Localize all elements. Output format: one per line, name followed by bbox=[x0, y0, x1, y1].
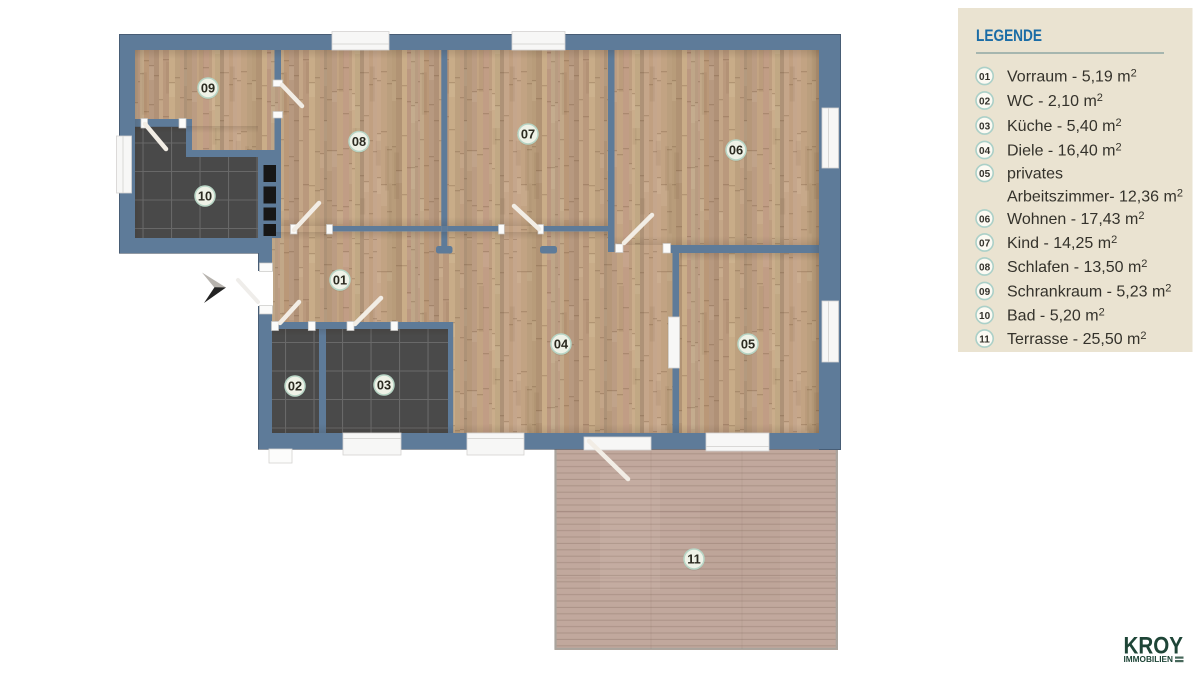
svg-text:WC - 2,10 m2: WC - 2,10 m2 bbox=[1007, 92, 1103, 110]
svg-text:03: 03 bbox=[979, 122, 991, 133]
svg-text:Arbeitszimmer- 12,36 m2: Arbeitszimmer- 12,36 m2 bbox=[1007, 188, 1183, 206]
svg-text:Vorraum - 5,19 m2: Vorraum - 5,19 m2 bbox=[1007, 68, 1137, 86]
svg-text:11: 11 bbox=[979, 335, 990, 346]
svg-text:03: 03 bbox=[377, 378, 391, 393]
svg-text:01: 01 bbox=[979, 72, 991, 83]
svg-text:Schrankraum - 5,23 m2: Schrankraum - 5,23 m2 bbox=[1007, 283, 1171, 301]
svg-text:08: 08 bbox=[979, 263, 991, 274]
svg-text:10: 10 bbox=[979, 311, 991, 322]
svg-text:05: 05 bbox=[741, 337, 755, 352]
svg-text:01: 01 bbox=[333, 273, 347, 288]
svg-text:06: 06 bbox=[729, 143, 743, 158]
svg-text:Diele - 16,40 m2: Diele - 16,40 m2 bbox=[1007, 142, 1122, 160]
svg-text:09: 09 bbox=[201, 81, 215, 96]
svg-text:Terrasse - 25,50 m2: Terrasse - 25,50 m2 bbox=[1007, 330, 1147, 348]
svg-text:LEGENDE: LEGENDE bbox=[976, 27, 1042, 45]
svg-text:06: 06 bbox=[979, 215, 991, 226]
svg-text:Küche - 5,40 m2: Küche - 5,40 m2 bbox=[1007, 117, 1122, 135]
svg-text:10: 10 bbox=[198, 189, 212, 204]
svg-text:IMMOBILIEN: IMMOBILIEN bbox=[1124, 654, 1174, 664]
svg-text:07: 07 bbox=[979, 239, 991, 250]
svg-text:11: 11 bbox=[687, 552, 701, 567]
svg-text:02: 02 bbox=[288, 379, 302, 394]
svg-text:Schlafen - 13,50 m2: Schlafen - 13,50 m2 bbox=[1007, 258, 1147, 276]
svg-text:Bad - 5,20 m2: Bad - 5,20 m2 bbox=[1007, 307, 1105, 325]
svg-text:08: 08 bbox=[352, 134, 366, 149]
svg-text:Wohnen - 17,43 m2: Wohnen - 17,43 m2 bbox=[1007, 210, 1144, 228]
svg-text:04: 04 bbox=[979, 146, 991, 157]
svg-text:09: 09 bbox=[979, 287, 991, 298]
svg-text:04: 04 bbox=[554, 337, 569, 352]
svg-text:05: 05 bbox=[979, 169, 991, 180]
svg-text:Kind - 14,25 m2: Kind - 14,25 m2 bbox=[1007, 234, 1117, 252]
svg-text:02: 02 bbox=[979, 97, 991, 108]
svg-text:07: 07 bbox=[521, 127, 535, 142]
svg-text:privates: privates bbox=[1007, 166, 1063, 183]
